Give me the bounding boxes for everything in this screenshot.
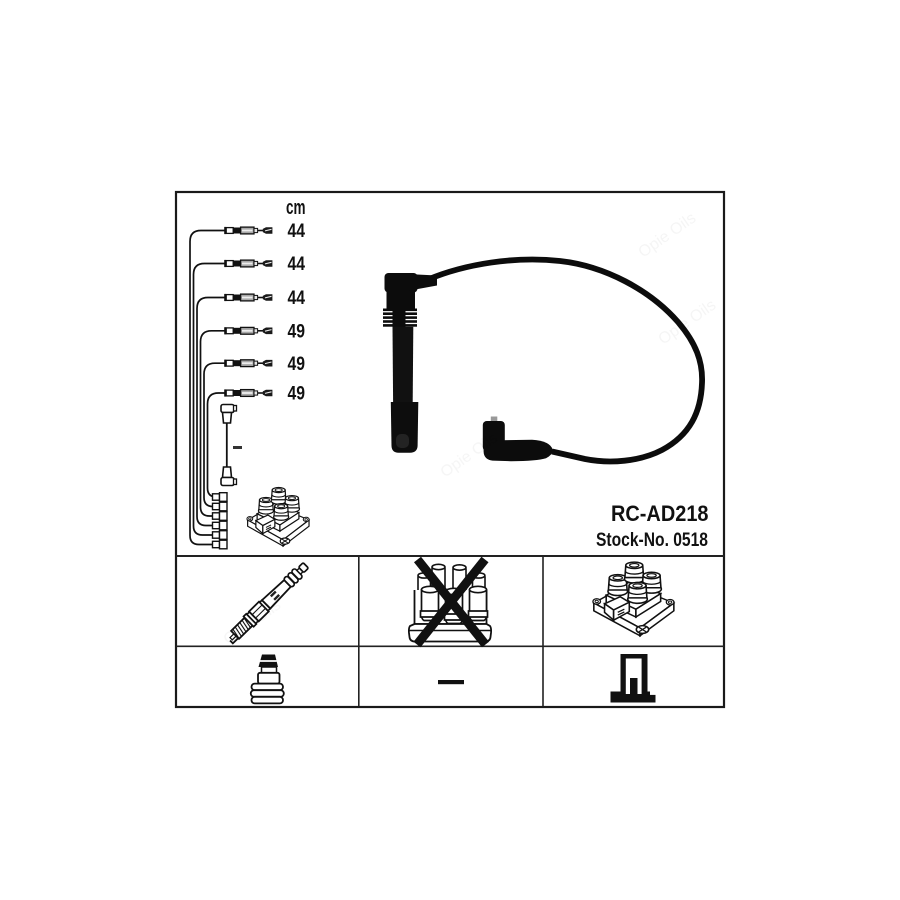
svg-text:Opie Oils: Opie Oils <box>656 297 720 349</box>
svg-text:Stock-No. 0518: Stock-No. 0518 <box>596 529 708 551</box>
svg-text:44: 44 <box>288 254 306 275</box>
svg-text:44: 44 <box>288 288 306 309</box>
svg-text:Opie Oils: Opie Oils <box>221 597 285 649</box>
svg-text:49: 49 <box>288 322 306 343</box>
svg-text:cm: cm <box>286 197 306 219</box>
svg-text:RC-AD218: RC-AD218 <box>611 501 709 526</box>
svg-text:49: 49 <box>288 384 306 405</box>
svg-text:Opie Oils: Opie Oils <box>636 210 700 262</box>
svg-text:44: 44 <box>288 221 306 242</box>
svg-text:49: 49 <box>288 354 306 375</box>
